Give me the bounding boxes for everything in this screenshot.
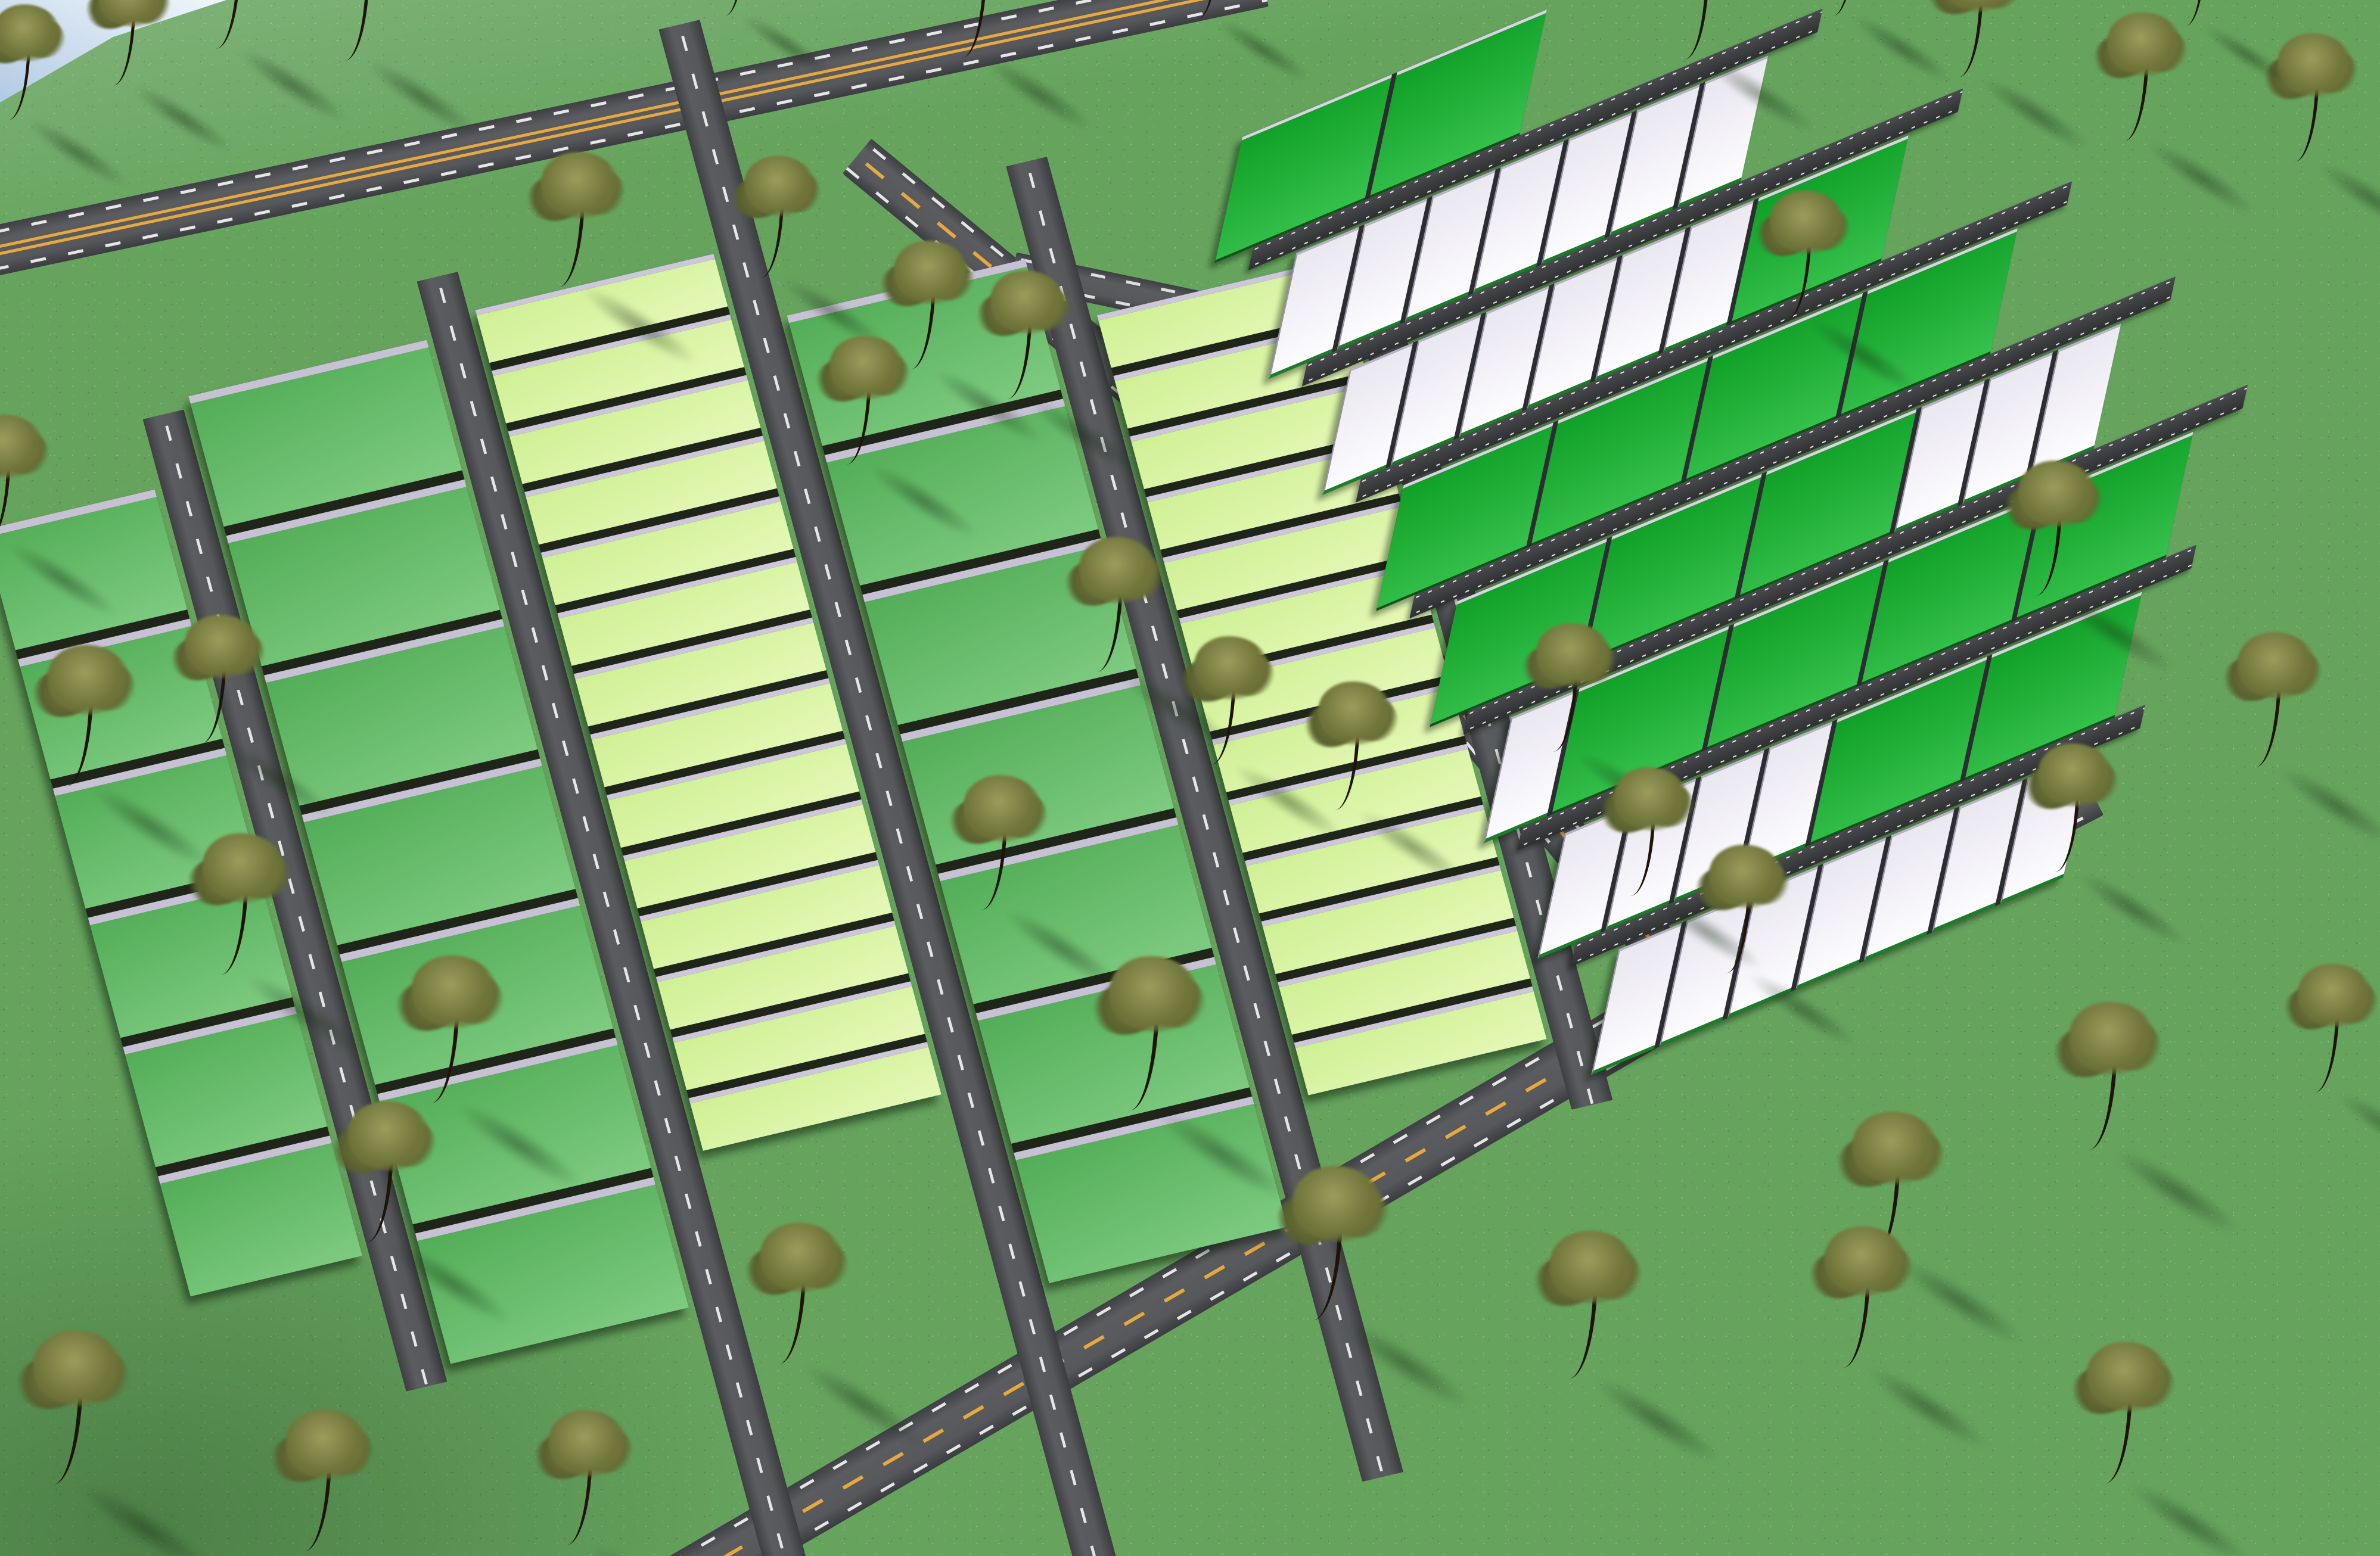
tree-canopy (1194, 636, 1269, 699)
tree-canopy (1770, 191, 1845, 254)
tree-canopy (541, 152, 620, 218)
tree-canopy (2278, 33, 2353, 97)
tree-canopy (964, 775, 1042, 841)
scene-3d-plot-layout (0, 0, 2380, 1556)
tree-canopy (2238, 632, 2316, 698)
tree-canopy (990, 270, 1065, 334)
tree-canopy (1536, 623, 1611, 686)
tree-canopy (2038, 743, 2113, 807)
tree-canopy (2298, 964, 2373, 1027)
tree-canopy (2107, 13, 2182, 76)
tree-canopy (1079, 537, 1158, 603)
tree-canopy (1709, 845, 1784, 908)
tree-canopy (1614, 767, 1689, 830)
tree-canopy (2018, 460, 2097, 527)
tree-canopy (185, 615, 260, 678)
tree-canopy (549, 1410, 627, 1476)
tree-canopy (1318, 681, 1393, 745)
tree-canopy (829, 336, 905, 399)
tree-canopy (894, 241, 969, 304)
tree-canopy (744, 156, 816, 216)
